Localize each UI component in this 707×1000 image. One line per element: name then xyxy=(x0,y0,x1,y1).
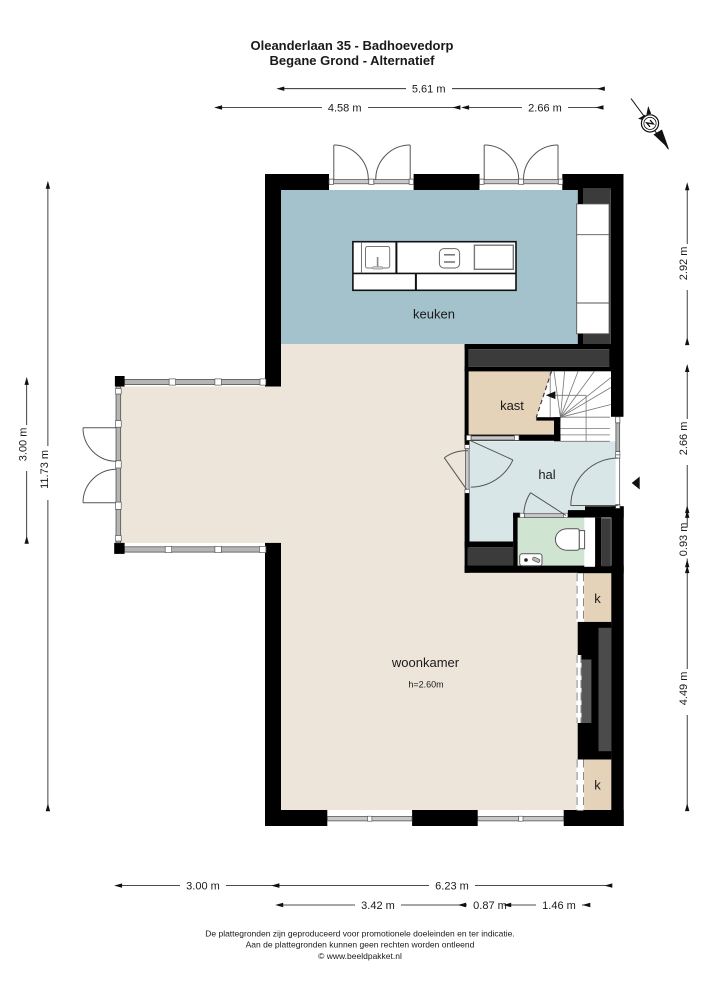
svg-text:0.87 m: 0.87 m xyxy=(473,900,507,912)
svg-text:k: k xyxy=(594,591,601,606)
svg-text:kast: kast xyxy=(500,398,524,413)
svg-text:2.66 m: 2.66 m xyxy=(528,103,562,115)
svg-text:hal: hal xyxy=(538,467,555,482)
svg-text:3.00 m: 3.00 m xyxy=(18,428,30,462)
svg-text:11.73 m: 11.73 m xyxy=(39,450,51,489)
svg-text:woonkamer: woonkamer xyxy=(391,655,460,670)
svg-text:h=2.60m: h=2.60m xyxy=(408,680,443,690)
svg-text:Begane Grond - Alternatief: Begane Grond - Alternatief xyxy=(270,53,436,68)
svg-text:keuken: keuken xyxy=(413,307,455,322)
svg-text:6.23 m: 6.23 m xyxy=(435,881,469,893)
svg-text:5.61 m: 5.61 m xyxy=(412,84,446,96)
svg-text:0.93 m: 0.93 m xyxy=(678,523,690,557)
svg-text:De plattegronden zijn geproduc: De plattegronden zijn geproduceerd voor … xyxy=(205,929,515,939)
svg-text:4.49 m: 4.49 m xyxy=(678,672,690,706)
svg-text:3.00 m: 3.00 m xyxy=(186,881,220,893)
svg-text:Oleanderlaan 35 - Badhoevedorp: Oleanderlaan 35 - Badhoevedorp xyxy=(250,38,453,53)
svg-text:2.92 m: 2.92 m xyxy=(678,247,690,281)
svg-text:2.66 m: 2.66 m xyxy=(678,422,690,456)
svg-text:3.42 m: 3.42 m xyxy=(361,900,395,912)
svg-text:k: k xyxy=(594,778,601,793)
svg-text:1.46 m: 1.46 m xyxy=(542,900,576,912)
svg-text:4.58 m: 4.58 m xyxy=(328,103,362,115)
svg-text:Aan de plattegronden kunnen ge: Aan de plattegronden kunnen geen rechten… xyxy=(246,940,475,950)
svg-text:© www.beeldpakket.nl: © www.beeldpakket.nl xyxy=(318,951,402,961)
